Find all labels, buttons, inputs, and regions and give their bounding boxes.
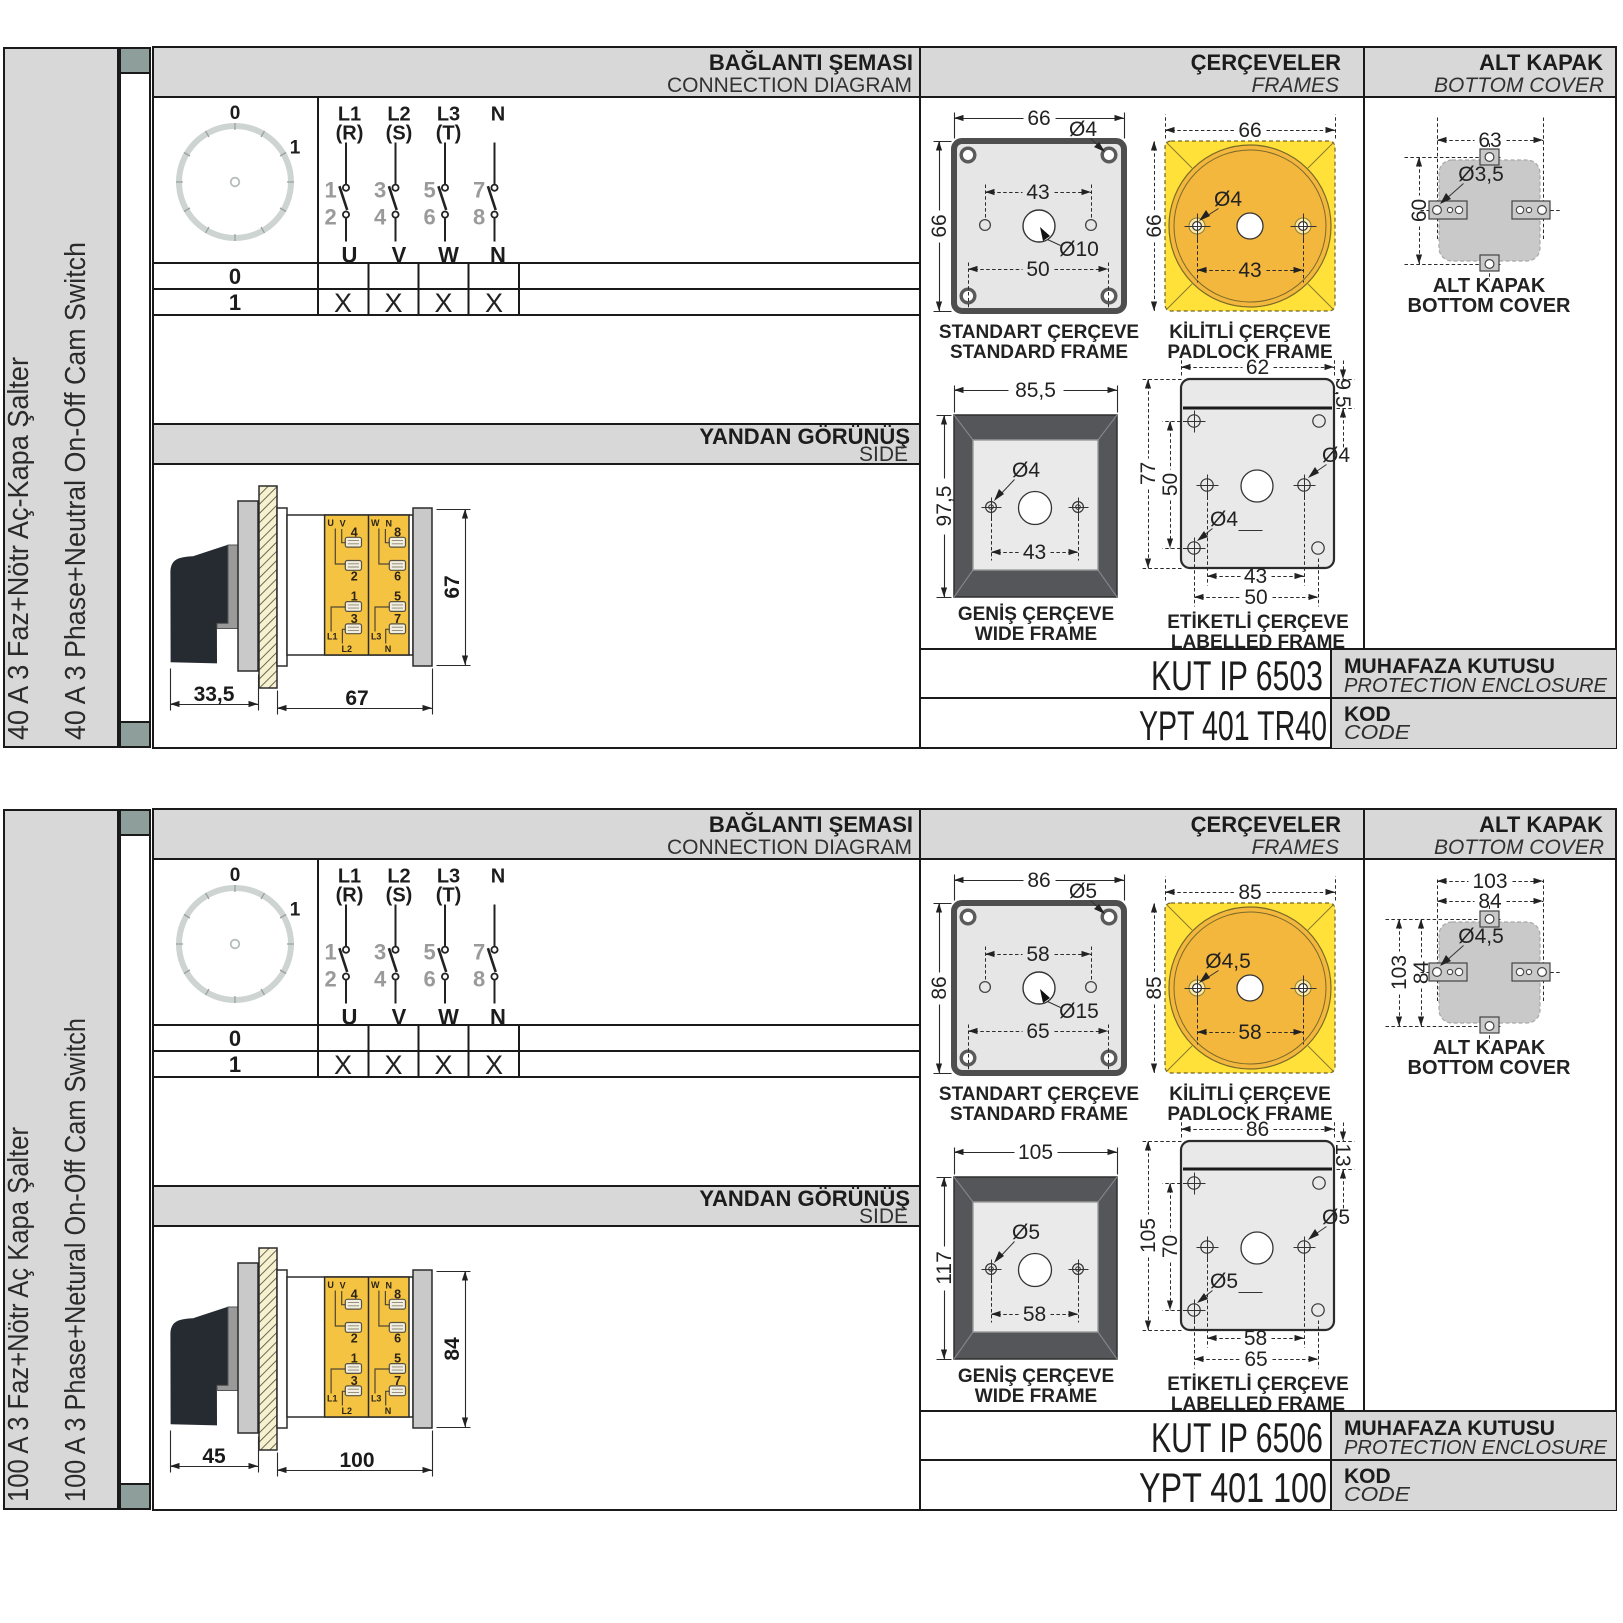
svg-text:100 A 3 Faz+Nötr Aç Kapa Şalte: 100 A 3 Faz+Nötr Aç Kapa Şalter xyxy=(3,1127,35,1502)
svg-text:1: 1 xyxy=(324,178,336,203)
svg-text:FRAMES: FRAMES xyxy=(1251,836,1339,859)
svg-text:0: 0 xyxy=(229,264,241,289)
svg-text:L2: L2 xyxy=(342,644,353,654)
svg-text:33,5: 33,5 xyxy=(194,683,235,706)
svg-text:63: 63 xyxy=(1478,129,1501,152)
svg-text:X: X xyxy=(485,288,503,318)
svg-text:43: 43 xyxy=(1023,541,1046,564)
svg-text:ALT KAPAK: ALT KAPAK xyxy=(1479,812,1603,837)
svg-text:3: 3 xyxy=(351,1374,358,1388)
svg-text:N: N xyxy=(386,519,393,529)
svg-text:84: 84 xyxy=(441,1337,464,1361)
svg-text:5: 5 xyxy=(394,589,401,603)
svg-text:8: 8 xyxy=(394,1288,401,1302)
svg-text:45: 45 xyxy=(202,1445,226,1468)
svg-text:ÇERÇEVELER: ÇERÇEVELER xyxy=(1191,50,1341,75)
svg-text:58: 58 xyxy=(1244,1327,1267,1350)
svg-text:U: U xyxy=(327,1280,334,1290)
svg-text:CONNECTION DIAGRAM: CONNECTION DIAGRAM xyxy=(667,74,912,97)
svg-text:66: 66 xyxy=(1027,107,1050,130)
svg-text:105: 105 xyxy=(1137,1218,1160,1253)
svg-text:(R): (R) xyxy=(336,885,364,907)
svg-text:YPT 401 TR40: YPT 401 TR40 xyxy=(1139,702,1327,749)
svg-text:ÇERÇEVELER: ÇERÇEVELER xyxy=(1191,812,1341,837)
svg-text:0: 0 xyxy=(229,1026,241,1051)
svg-text:1: 1 xyxy=(351,589,358,603)
svg-text:2: 2 xyxy=(324,205,336,230)
svg-text:W: W xyxy=(371,1280,380,1290)
svg-text:BOTTOM COVER: BOTTOM COVER xyxy=(1408,1057,1572,1079)
svg-text:Ø4: Ø4 xyxy=(1210,508,1238,531)
svg-text:66: 66 xyxy=(1143,214,1166,237)
svg-text:5: 5 xyxy=(423,940,435,965)
svg-text:40 A 3 Phase+Neutral On-Off Ca: 40 A 3 Phase+Neutral On-Off Cam Switch xyxy=(60,242,92,740)
svg-text:X: X xyxy=(485,1050,503,1080)
svg-text:66: 66 xyxy=(928,214,951,237)
svg-text:58: 58 xyxy=(1023,1303,1046,1326)
svg-text:43: 43 xyxy=(1244,565,1267,588)
svg-text:X: X xyxy=(334,1050,352,1080)
svg-text:4: 4 xyxy=(351,1288,358,1302)
svg-text:STANDART ÇERÇEVE: STANDART ÇERÇEVE xyxy=(939,322,1139,343)
svg-text:(S): (S) xyxy=(386,885,413,907)
svg-text:ETİKETLİ ÇERÇEVE: ETİKETLİ ÇERÇEVE xyxy=(1167,612,1349,633)
svg-text:L1: L1 xyxy=(327,1394,338,1404)
svg-text:N: N xyxy=(491,104,505,126)
svg-text:66: 66 xyxy=(1238,119,1261,142)
svg-text:8: 8 xyxy=(473,205,485,230)
svg-text:WIDE FRAME: WIDE FRAME xyxy=(975,624,1097,645)
svg-text:50: 50 xyxy=(1244,586,1267,609)
svg-text:V: V xyxy=(340,1281,346,1291)
svg-text:CONNECTION DIAGRAM: CONNECTION DIAGRAM xyxy=(667,836,912,859)
svg-text:Ø4: Ø4 xyxy=(1069,118,1097,141)
svg-text:(T): (T) xyxy=(436,123,462,145)
svg-text:U: U xyxy=(327,518,334,528)
svg-text:77: 77 xyxy=(1137,462,1160,485)
svg-text:KİLİTLİ ÇERÇEVE: KİLİTLİ ÇERÇEVE xyxy=(1169,322,1331,343)
svg-text:2: 2 xyxy=(324,967,336,992)
svg-text:SIDE: SIDE xyxy=(859,1205,908,1228)
svg-text:N: N xyxy=(491,866,505,888)
svg-text:Ø4: Ø4 xyxy=(1322,444,1350,467)
svg-text:L3: L3 xyxy=(371,632,382,642)
svg-text:L3: L3 xyxy=(371,1394,382,1404)
svg-text:Ø4: Ø4 xyxy=(1214,188,1242,211)
svg-text:117: 117 xyxy=(933,1251,956,1284)
svg-text:1: 1 xyxy=(290,138,301,159)
svg-text:CODE: CODE xyxy=(1344,722,1411,744)
svg-text:7: 7 xyxy=(473,178,485,203)
svg-text:50: 50 xyxy=(1026,258,1049,281)
svg-text:8: 8 xyxy=(473,967,485,992)
svg-text:YPT 401 100: YPT 401 100 xyxy=(1139,1464,1327,1511)
svg-text:7: 7 xyxy=(394,1374,401,1388)
svg-text:BAĞLANTI ŞEMASI: BAĞLANTI ŞEMASI xyxy=(709,50,913,75)
svg-text:STANDARD FRAME: STANDARD FRAME xyxy=(950,1104,1128,1125)
svg-text:100: 100 xyxy=(339,1449,374,1472)
svg-text:3: 3 xyxy=(374,178,386,203)
svg-text:6: 6 xyxy=(394,1331,401,1345)
svg-text:GENİŞ ÇERÇEVE: GENİŞ ÇERÇEVE xyxy=(958,1366,1114,1387)
svg-text:86: 86 xyxy=(1246,1118,1269,1141)
svg-text:STANDART ÇERÇEVE: STANDART ÇERÇEVE xyxy=(939,1084,1139,1105)
svg-text:KUT IP 6506: KUT IP 6506 xyxy=(1151,1414,1323,1461)
svg-text:Ø10: Ø10 xyxy=(1059,238,1099,261)
svg-text:58: 58 xyxy=(1238,1021,1261,1044)
svg-text:1: 1 xyxy=(324,940,336,965)
svg-text:5: 5 xyxy=(423,178,435,203)
svg-text:103: 103 xyxy=(1388,955,1411,990)
svg-text:PROTECTION ENCLOSURE: PROTECTION ENCLOSURE xyxy=(1344,675,1608,697)
svg-text:50: 50 xyxy=(1159,473,1182,496)
svg-text:BAĞLANTI ŞEMASI: BAĞLANTI ŞEMASI xyxy=(709,812,913,837)
svg-text:ETİKETLİ ÇERÇEVE: ETİKETLİ ÇERÇEVE xyxy=(1167,1374,1349,1395)
svg-text:43: 43 xyxy=(1026,181,1049,204)
svg-text:43: 43 xyxy=(1238,259,1261,282)
svg-text:KUT IP 6503: KUT IP 6503 xyxy=(1151,652,1323,699)
svg-text:67: 67 xyxy=(345,687,368,710)
svg-text:2: 2 xyxy=(351,569,358,583)
svg-text:4: 4 xyxy=(374,205,387,230)
svg-text:97,5: 97,5 xyxy=(933,486,956,527)
svg-text:Ø5: Ø5 xyxy=(1012,1221,1040,1244)
svg-text:GENİŞ ÇERÇEVE: GENİŞ ÇERÇEVE xyxy=(958,604,1114,625)
svg-text:KİLİTLİ ÇERÇEVE: KİLİTLİ ÇERÇEVE xyxy=(1169,1084,1331,1105)
svg-text:SIDE: SIDE xyxy=(859,443,908,466)
svg-text:100 A 3 Phase+Netural On-Off C: 100 A 3 Phase+Netural On-Off Cam Switch xyxy=(60,1018,92,1502)
svg-text:N: N xyxy=(385,644,392,654)
svg-text:9,5: 9,5 xyxy=(1331,378,1354,407)
svg-text:STANDARD FRAME: STANDARD FRAME xyxy=(950,342,1128,363)
svg-text:6: 6 xyxy=(423,967,435,992)
svg-text:N: N xyxy=(385,1406,392,1416)
svg-text:7: 7 xyxy=(473,940,485,965)
svg-text:Ø3,5: Ø3,5 xyxy=(1458,163,1504,186)
svg-text:0: 0 xyxy=(230,865,241,886)
svg-text:40 A 3 Faz+Nötr Aç-Kapa Şalter: 40 A 3 Faz+Nötr Aç-Kapa Şalter xyxy=(3,357,35,740)
svg-text:70: 70 xyxy=(1159,1235,1182,1258)
svg-text:0: 0 xyxy=(230,103,241,124)
svg-text:13: 13 xyxy=(1331,1143,1354,1166)
svg-text:X: X xyxy=(434,1050,452,1080)
svg-text:Ø4,5: Ø4,5 xyxy=(1205,950,1251,973)
svg-text:1: 1 xyxy=(229,290,241,315)
svg-text:4: 4 xyxy=(374,967,387,992)
svg-text:ALT KAPAK: ALT KAPAK xyxy=(1433,1037,1546,1059)
svg-text:V: V xyxy=(340,519,346,529)
svg-text:6: 6 xyxy=(423,205,435,230)
svg-text:86: 86 xyxy=(928,976,951,999)
svg-text:6: 6 xyxy=(394,569,401,583)
svg-text:2: 2 xyxy=(351,1331,358,1345)
svg-text:(T): (T) xyxy=(436,885,462,907)
svg-text:WIDE FRAME: WIDE FRAME xyxy=(975,1386,1097,1407)
svg-text:85: 85 xyxy=(1238,881,1261,904)
svg-text:105: 105 xyxy=(1018,1141,1053,1164)
svg-text:60: 60 xyxy=(1408,199,1431,222)
svg-text:Ø4,5: Ø4,5 xyxy=(1458,925,1504,948)
svg-text:3: 3 xyxy=(374,940,386,965)
svg-text:W: W xyxy=(371,518,380,528)
svg-text:CODE: CODE xyxy=(1344,1484,1411,1506)
svg-text:1: 1 xyxy=(351,1351,358,1365)
svg-text:FRAMES: FRAMES xyxy=(1251,74,1339,97)
svg-text:5: 5 xyxy=(394,1351,401,1365)
svg-text:N: N xyxy=(386,1281,393,1291)
svg-text:Ø4: Ø4 xyxy=(1012,459,1040,482)
svg-text:67: 67 xyxy=(441,575,464,598)
svg-text:(R): (R) xyxy=(336,123,364,145)
svg-text:ALT KAPAK: ALT KAPAK xyxy=(1433,275,1546,297)
svg-text:86: 86 xyxy=(1027,869,1050,892)
svg-text:PROTECTION ENCLOSURE: PROTECTION ENCLOSURE xyxy=(1344,1437,1608,1459)
svg-text:1: 1 xyxy=(229,1052,241,1077)
svg-text:85,5: 85,5 xyxy=(1015,379,1056,402)
svg-text:3: 3 xyxy=(351,612,358,626)
svg-text:(S): (S) xyxy=(386,123,413,145)
svg-text:L1: L1 xyxy=(327,632,338,642)
svg-text:8: 8 xyxy=(394,526,401,540)
svg-text:Ø5: Ø5 xyxy=(1322,1206,1350,1229)
svg-text:65: 65 xyxy=(1026,1020,1049,1043)
svg-text:1: 1 xyxy=(290,900,301,921)
svg-text:X: X xyxy=(434,288,452,318)
svg-text:58: 58 xyxy=(1026,943,1049,966)
svg-text:7: 7 xyxy=(394,612,401,626)
svg-text:4: 4 xyxy=(351,526,358,540)
svg-text:ALT KAPAK: ALT KAPAK xyxy=(1479,50,1603,75)
svg-text:Ø15: Ø15 xyxy=(1059,1000,1099,1023)
svg-text:X: X xyxy=(384,1050,402,1080)
svg-text:L2: L2 xyxy=(342,1406,353,1416)
svg-text:Ø5: Ø5 xyxy=(1069,880,1097,903)
svg-text:BOTTOM COVER: BOTTOM COVER xyxy=(1408,295,1572,317)
svg-text:84: 84 xyxy=(1478,890,1502,913)
svg-text:62: 62 xyxy=(1246,356,1269,379)
svg-text:Ø5: Ø5 xyxy=(1210,1270,1238,1293)
svg-text:85: 85 xyxy=(1143,976,1166,999)
svg-text:X: X xyxy=(384,288,402,318)
svg-text:65: 65 xyxy=(1244,1348,1267,1371)
svg-text:84: 84 xyxy=(1410,961,1433,985)
svg-text:BOTTOM COVER: BOTTOM COVER xyxy=(1434,836,1604,859)
svg-text:X: X xyxy=(334,288,352,318)
svg-text:BOTTOM COVER: BOTTOM COVER xyxy=(1434,74,1604,97)
